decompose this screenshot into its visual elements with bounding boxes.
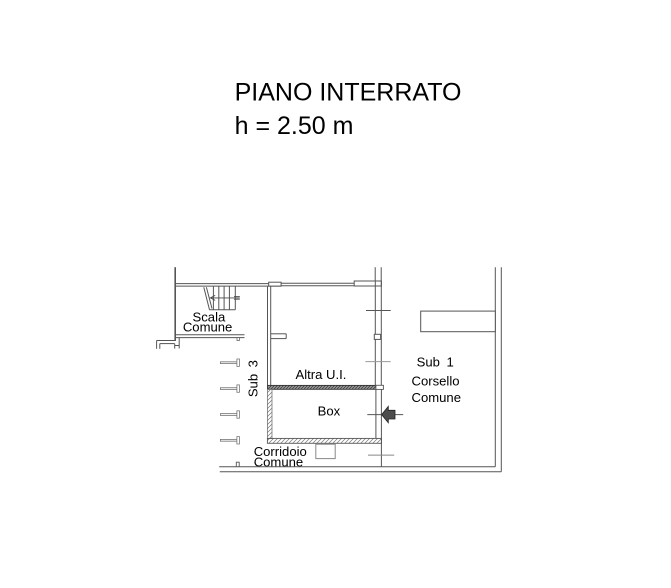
svg-text:Sub 1: Sub 1 bbox=[417, 355, 454, 370]
svg-text:h = 2.50 m: h = 2.50 m bbox=[235, 112, 354, 140]
svg-text:Corsello: Corsello bbox=[412, 374, 460, 389]
svg-text:Box: Box bbox=[318, 404, 341, 419]
svg-text:Sub 3: Sub 3 bbox=[246, 360, 261, 397]
svg-text:Comune: Comune bbox=[183, 320, 233, 335]
svg-text:Comune: Comune bbox=[412, 390, 462, 405]
svg-text:PIANO INTERRATO: PIANO INTERRATO bbox=[235, 79, 462, 107]
svg-text:Altra U.I.: Altra U.I. bbox=[296, 367, 347, 382]
